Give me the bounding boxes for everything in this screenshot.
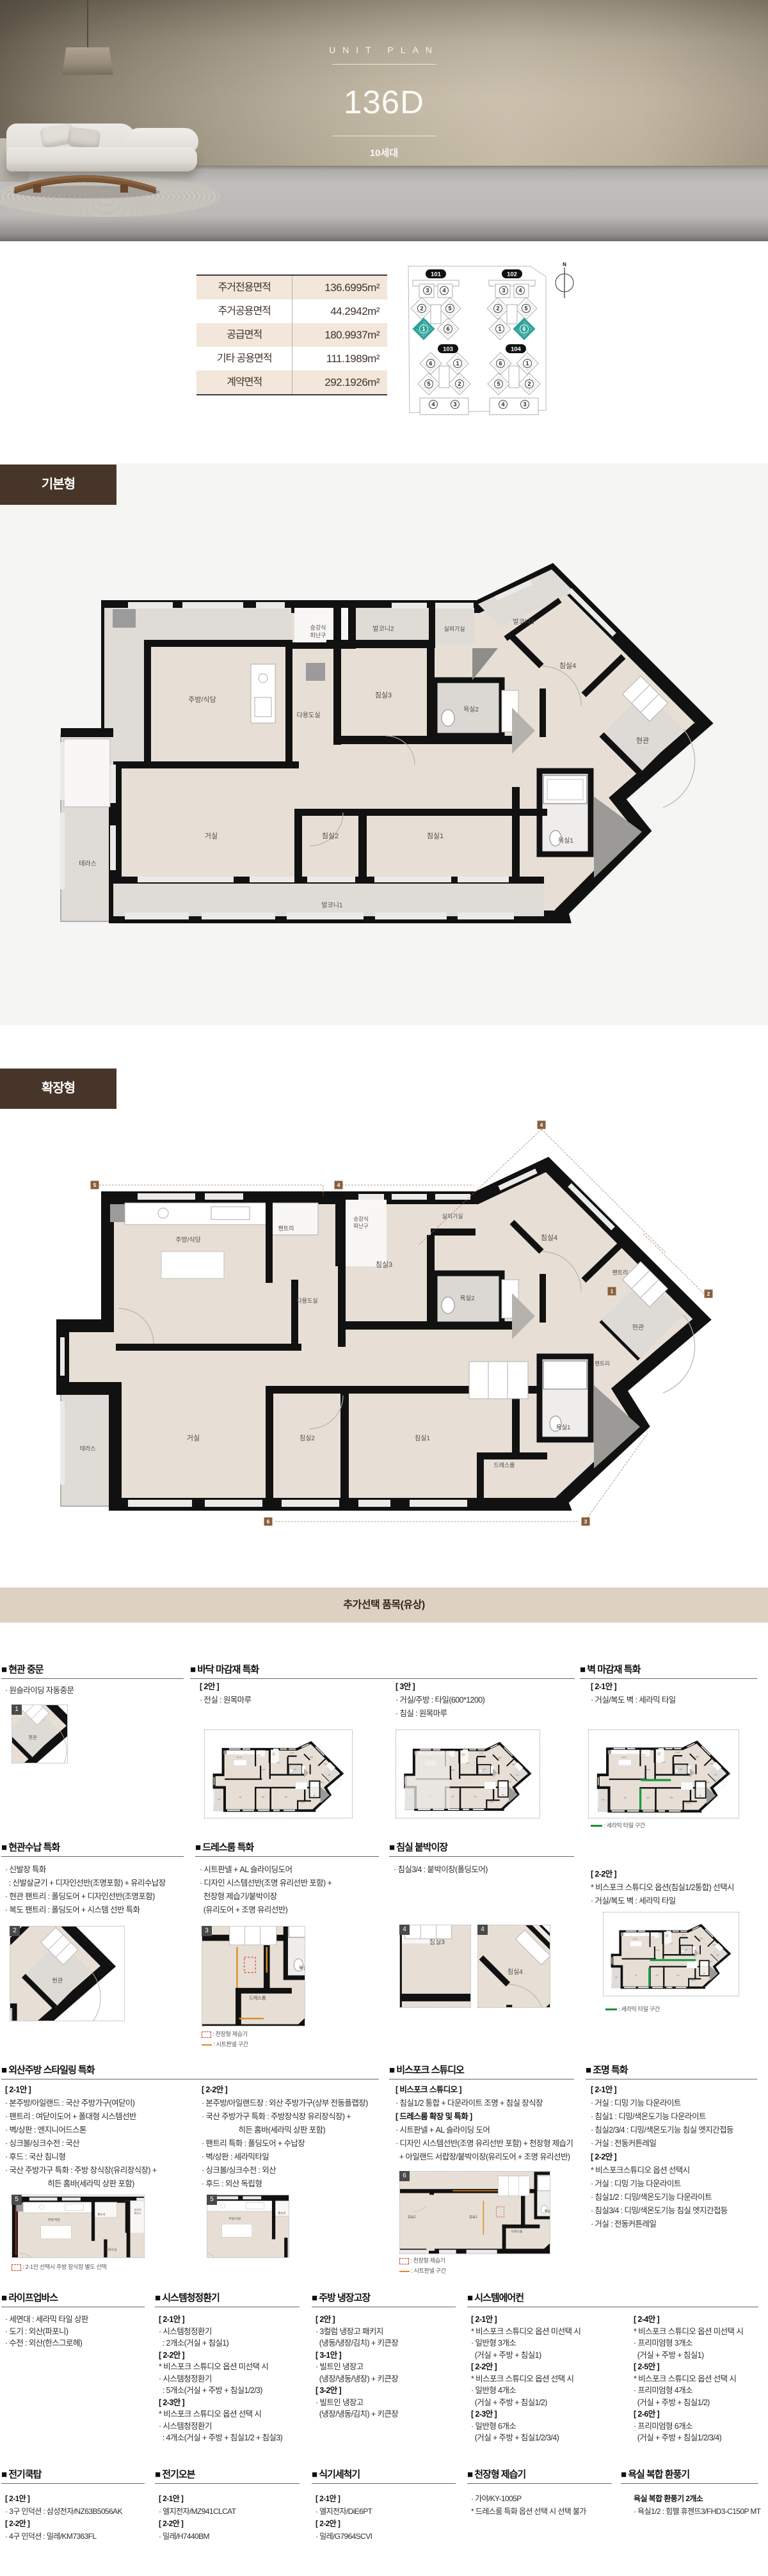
svg-text:침실3: 침실3 xyxy=(376,1260,392,1269)
svg-text:다용도실: 다용도실 xyxy=(296,1298,317,1304)
svg-text:N: N xyxy=(563,262,566,267)
svg-text:5: 5 xyxy=(448,305,451,312)
svg-text:현관: 현관 xyxy=(636,736,649,745)
svg-text:1: 1 xyxy=(498,326,501,332)
svg-text:3: 3 xyxy=(584,1518,588,1525)
svg-text:4: 4 xyxy=(431,401,435,408)
svg-text:팬트리: 팬트리 xyxy=(278,1225,294,1232)
svg-text:승강식: 승강식 xyxy=(310,624,326,631)
svg-text:욕실1: 욕실1 xyxy=(558,837,573,845)
svg-text:6: 6 xyxy=(429,360,432,367)
svg-text:침실1: 침실1 xyxy=(427,832,444,840)
svg-text:5: 5 xyxy=(524,305,527,312)
svg-text:6: 6 xyxy=(446,326,449,332)
svg-text:승강식: 승강식 xyxy=(353,1216,368,1222)
svg-text:1: 1 xyxy=(611,1288,614,1294)
svg-text:3: 3 xyxy=(523,401,526,408)
svg-text:1: 1 xyxy=(422,326,425,332)
svg-text:욕실2: 욕실2 xyxy=(460,1295,475,1302)
svg-text:5: 5 xyxy=(427,381,430,387)
svg-text:침실4: 침실4 xyxy=(541,1234,557,1242)
svg-text:발코니3: 발코니3 xyxy=(513,618,534,626)
svg-text:거실: 거실 xyxy=(187,1434,200,1442)
svg-text:침실2: 침실2 xyxy=(300,1435,315,1442)
svg-text:욕실2: 욕실2 xyxy=(463,706,479,713)
svg-text:3: 3 xyxy=(426,287,429,294)
svg-text:2: 2 xyxy=(458,381,461,387)
svg-text:5: 5 xyxy=(93,1182,97,1188)
svg-text:침실2: 침실2 xyxy=(322,832,339,840)
svg-text:테라스: 테라스 xyxy=(80,1445,96,1452)
svg-text:6: 6 xyxy=(267,1518,270,1525)
svg-text:발코니1: 발코니1 xyxy=(321,902,343,909)
svg-text:104: 104 xyxy=(511,346,522,353)
svg-text:드레스룸: 드레스룸 xyxy=(493,1462,515,1468)
svg-text:주방/식당: 주방/식당 xyxy=(188,696,216,704)
svg-text:4: 4 xyxy=(518,287,522,294)
svg-text:침실3: 침실3 xyxy=(375,691,392,699)
svg-text:다용도실: 다용도실 xyxy=(297,712,321,719)
svg-text:발코니2: 발코니2 xyxy=(372,625,394,633)
svg-text:3: 3 xyxy=(502,287,505,294)
svg-text:6: 6 xyxy=(522,326,525,332)
svg-text:4: 4 xyxy=(501,401,504,408)
svg-text:1: 1 xyxy=(525,360,529,367)
svg-text:침실1: 침실1 xyxy=(415,1435,430,1442)
svg-text:4: 4 xyxy=(442,287,445,294)
svg-text:1: 1 xyxy=(456,360,459,367)
svg-text:침실4: 침실4 xyxy=(559,662,576,670)
svg-text:101: 101 xyxy=(431,271,442,278)
svg-text:팬트리: 팬트리 xyxy=(612,1269,628,1276)
svg-text:4: 4 xyxy=(540,1122,543,1128)
svg-text:2: 2 xyxy=(707,1291,710,1297)
svg-text:피난구: 피난구 xyxy=(310,632,326,639)
svg-text:103: 103 xyxy=(443,346,453,353)
svg-text:테라스: 테라스 xyxy=(79,860,97,868)
svg-text:팬트리: 팬트리 xyxy=(595,1360,609,1367)
svg-text:5: 5 xyxy=(497,381,500,387)
svg-text:피난구: 피난구 xyxy=(353,1223,369,1229)
svg-text:욕실1: 욕실1 xyxy=(556,1424,571,1431)
svg-text:3: 3 xyxy=(453,401,456,408)
svg-text:주방/식당: 주방/식당 xyxy=(175,1236,201,1244)
svg-text:4: 4 xyxy=(337,1182,340,1188)
svg-text:2: 2 xyxy=(420,305,423,312)
svg-text:2: 2 xyxy=(527,381,531,387)
svg-text:현관: 현관 xyxy=(632,1324,644,1332)
svg-text:6: 6 xyxy=(499,360,502,367)
svg-text:2: 2 xyxy=(496,305,499,312)
svg-text:실외기실: 실외기실 xyxy=(442,1212,463,1220)
svg-text:102: 102 xyxy=(507,271,517,278)
svg-text:실외기실: 실외기실 xyxy=(444,625,465,632)
svg-text:거실: 거실 xyxy=(205,832,218,840)
